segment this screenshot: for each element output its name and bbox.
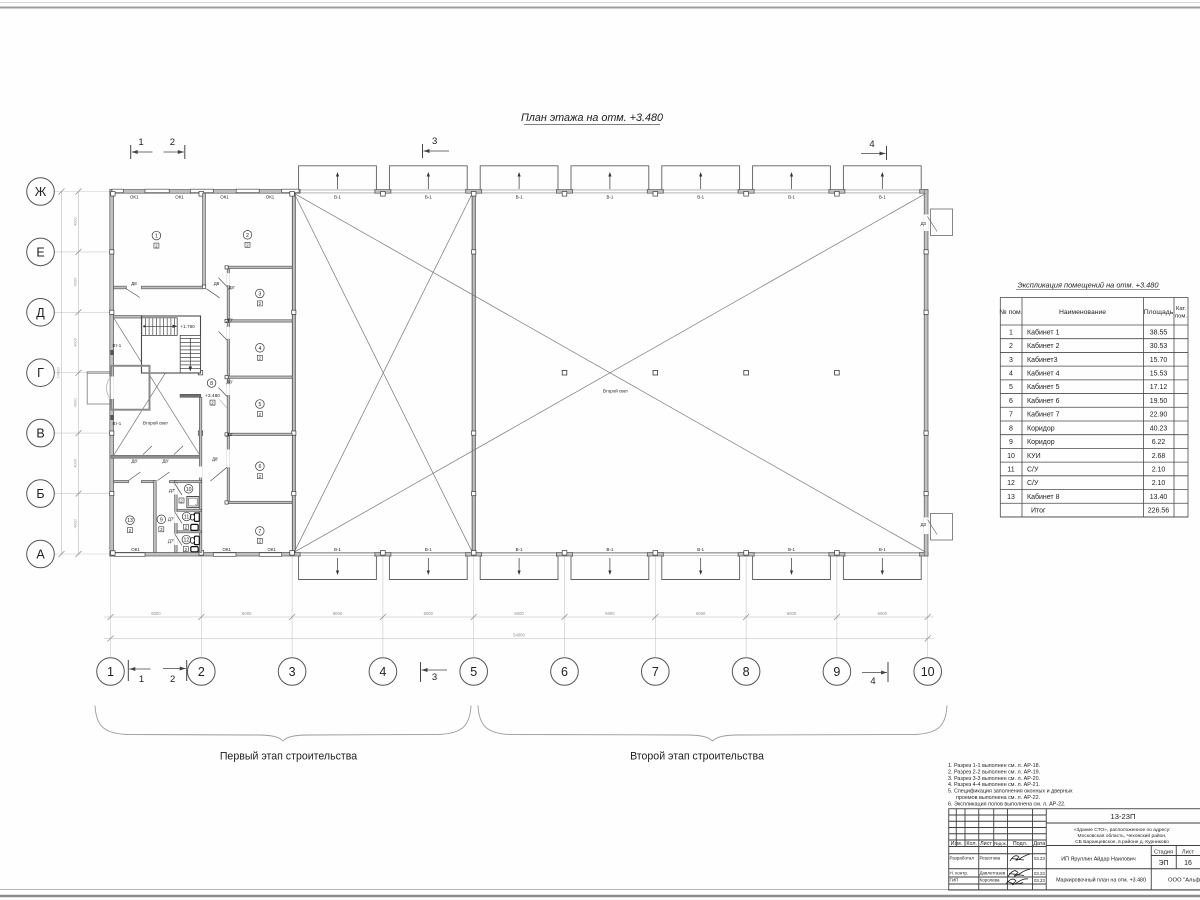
svg-text:6000: 6000 — [333, 611, 343, 616]
svg-text:Экспликация помещений на отм.: Экспликация помещений на отм. +3.480 — [1017, 281, 1159, 290]
svg-text:КУИ: КУИ — [1027, 453, 1041, 460]
svg-text:Д7': Д7' — [168, 539, 174, 544]
svg-text:Д8': Д8' — [162, 459, 168, 464]
svg-text:Ж: Ж — [35, 185, 47, 199]
svg-text:ОК1: ОК1 — [131, 547, 140, 552]
svg-text:5: 5 — [470, 665, 477, 679]
svg-text:1: 1 — [138, 137, 143, 148]
svg-text:2.68: 2.68 — [1152, 453, 1166, 460]
svg-text:4000: 4000 — [73, 216, 78, 226]
svg-text:1: 1 — [1009, 329, 1013, 336]
svg-text:2: 2 — [170, 137, 175, 148]
svg-text:2: 2 — [170, 674, 175, 685]
svg-text:1. Разрез 1-1 выполнен см. л.: 1. Разрез 1-1 выполнен см. л. АР-18. — [948, 763, 1040, 769]
svg-text:1: 1 — [107, 665, 114, 679]
svg-text:№ пом.: № пом. — [999, 309, 1022, 316]
svg-text:Разработал: Разработал — [950, 856, 975, 861]
svg-text:Д8': Д8' — [228, 285, 234, 290]
svg-text:2.10: 2.10 — [1152, 480, 1166, 487]
svg-text:Д8': Д8' — [226, 432, 232, 437]
svg-text:15.70: 15.70 — [1150, 357, 1168, 364]
svg-text:Стадия: Стадия — [1154, 850, 1173, 856]
svg-text:Кабинет 8: Кабинет 8 — [1027, 493, 1060, 501]
svg-text:15.53: 15.53 — [1150, 371, 1168, 378]
svg-text:4000: 4000 — [73, 277, 78, 287]
svg-text:Московская область, Чеховский: Московская область, Чеховский район, — [1078, 832, 1167, 839]
svg-text:Решетова: Решетова — [980, 856, 1001, 861]
svg-text:4000: 4000 — [73, 337, 78, 347]
svg-text:6. Экспликация полов выполнена: 6. Экспликация полов выполнена см. л. АР… — [948, 801, 1066, 807]
svg-text:10: 10 — [1007, 453, 1015, 460]
svg-text:Д3: Д3 — [921, 221, 927, 226]
svg-text:Лист: Лист — [1182, 850, 1195, 856]
svg-text:Подл.: Подл. — [1013, 841, 1028, 847]
svg-text:4: 4 — [379, 665, 386, 679]
svg-text:13.40: 13.40 — [1150, 494, 1168, 501]
svg-text:6000: 6000 — [424, 611, 434, 616]
svg-text:Коридор: Коридор — [1027, 439, 1055, 446]
svg-text:Д8': Д8' — [226, 380, 232, 385]
svg-text:Д: Д — [36, 306, 45, 320]
svg-text:1: 1 — [155, 234, 158, 240]
svg-text:6000: 6000 — [514, 611, 524, 616]
svg-text:6: 6 — [561, 665, 568, 679]
svg-text:Д8: Д8 — [131, 281, 137, 286]
svg-text:11: 11 — [1007, 467, 1014, 474]
svg-text:2.10: 2.10 — [1152, 467, 1166, 474]
svg-text:40.23: 40.23 — [1150, 425, 1168, 432]
svg-text:С/У: С/У — [1027, 480, 1039, 487]
svg-text:Кабинет3: Кабинет3 — [1027, 356, 1058, 364]
svg-text:8: 8 — [1009, 425, 1013, 432]
svg-text:Маркировочный план на отм. +3.: Маркировочный план на отм. +3.480 — [1056, 877, 1146, 884]
svg-text:2: 2 — [246, 233, 249, 239]
svg-text:ИП Яруллин Айдар Наилович: ИП Яруллин Айдар Наилович — [1061, 856, 1136, 863]
svg-text:ОК1: ОК1 — [267, 547, 276, 552]
svg-text:Кабинет 5: Кабинет 5 — [1027, 383, 1060, 391]
svg-text:3: 3 — [258, 291, 261, 297]
svg-text:Лист: Лист — [980, 841, 992, 847]
svg-text:№док.: №док. — [994, 841, 1007, 846]
svg-text:3: 3 — [432, 136, 437, 147]
svg-text:9: 9 — [833, 665, 840, 679]
svg-text:03.23: 03.23 — [1034, 878, 1045, 883]
svg-text:8: 8 — [743, 665, 750, 679]
svg-text:ОК1: ОК1 — [130, 195, 139, 200]
svg-text:ГИП: ГИП — [950, 878, 959, 883]
svg-text:Коридор: Коридор — [1027, 425, 1055, 432]
svg-text:В-1: В-1 — [879, 195, 886, 200]
svg-text:6000: 6000 — [605, 611, 615, 616]
svg-text:2: 2 — [1009, 343, 1013, 350]
svg-text:Д3: Д3 — [921, 522, 927, 527]
svg-text:В-1: В-1 — [516, 547, 523, 552]
svg-text:В-1: В-1 — [516, 195, 523, 200]
svg-text:Первый этап строительства: Первый этап строительства — [220, 751, 357, 763]
svg-text:Вт-1: Вт-1 — [113, 343, 122, 348]
svg-text:С/У: С/У — [1027, 467, 1039, 474]
svg-text:13: 13 — [1007, 494, 1015, 501]
svg-text:Дата: Дата — [1033, 841, 1045, 847]
svg-text:В-1: В-1 — [697, 195, 704, 200]
svg-text:СБ Баранцевское, в районе д. К: СБ Баранцевское, в районе д. Курниково — [1075, 838, 1169, 845]
svg-text:В-1: В-1 — [879, 547, 886, 552]
svg-text:Королева: Королева — [980, 878, 1000, 883]
svg-text:226.56: 226.56 — [1148, 508, 1170, 515]
svg-text:17.12: 17.12 — [1150, 384, 1168, 391]
svg-text:Изм.: Изм. — [951, 841, 963, 847]
svg-text:12: 12 — [1007, 480, 1015, 487]
svg-text:11: 11 — [184, 515, 189, 521]
svg-text:6000: 6000 — [787, 611, 797, 616]
svg-text:16: 16 — [1184, 860, 1192, 867]
svg-text:ОК1: ОК1 — [222, 547, 231, 552]
svg-text:5: 5 — [258, 402, 261, 408]
svg-text:«Здание СТО», расположенное по: «Здание СТО», расположенное по адресу: — [1073, 827, 1170, 833]
svg-text:Д8': Д8' — [131, 459, 137, 464]
svg-text:2: 2 — [198, 665, 205, 679]
svg-text:38.55: 38.55 — [1150, 329, 1168, 336]
svg-text:пом.: пом. — [1175, 314, 1187, 320]
svg-text:3: 3 — [289, 665, 296, 679]
svg-text:Б: Б — [36, 487, 44, 501]
svg-text:4000: 4000 — [73, 519, 78, 529]
svg-text:ООО "Альфа: ООО "Альфа — [1168, 878, 1200, 884]
svg-text:ОК1: ОК1 — [175, 195, 184, 200]
svg-text:+3.480: +3.480 — [205, 393, 220, 399]
svg-text:В-1: В-1 — [697, 547, 704, 552]
svg-text:В-1: В-1 — [606, 195, 613, 200]
svg-text:03.23: 03.23 — [1034, 856, 1045, 861]
svg-text:Итог: Итог — [1031, 508, 1046, 515]
svg-text:3: 3 — [1009, 357, 1013, 364]
svg-text:10: 10 — [921, 665, 935, 679]
svg-text:В-1: В-1 — [334, 547, 341, 552]
svg-text:В-1: В-1 — [425, 195, 432, 200]
svg-text:Е: Е — [36, 245, 44, 259]
svg-text:Площадь: Площадь — [1144, 309, 1174, 316]
svg-text:13: 13 — [127, 518, 133, 524]
svg-text:4. Разрез 4-4 выполнен см. л.: 4. Разрез 4-4 выполнен см. л. АР-21. — [948, 782, 1040, 788]
svg-text:8: 8 — [210, 381, 213, 387]
svg-text:Г: Г — [37, 366, 44, 380]
svg-text:Кабинет 2: Кабинет 2 — [1027, 342, 1060, 350]
svg-text:4: 4 — [258, 346, 261, 352]
svg-text:7: 7 — [1009, 412, 1013, 419]
svg-text:Кабинет 6: Кабинет 6 — [1027, 397, 1060, 405]
svg-text:2. Разрез 2-2 выполнен см. л.: 2. Разрез 2-2 выполнен см. л. АР-19. — [948, 770, 1040, 776]
svg-text:В-1: В-1 — [334, 195, 341, 200]
svg-text:5: 5 — [1009, 384, 1013, 391]
svg-text:Кабинет 7: Кабинет 7 — [1027, 411, 1060, 419]
svg-text:Кабинет 1: Кабинет 1 — [1027, 328, 1060, 336]
svg-text:Второй этап строительства: Второй этап строительства — [630, 751, 764, 763]
svg-text:5. Спецификация заполнения око: 5. Спецификация заполнения оконных и две… — [948, 789, 1073, 795]
svg-text:ОК1: ОК1 — [220, 195, 229, 200]
svg-text:В-1: В-1 — [606, 547, 613, 552]
svg-text:3: 3 — [432, 672, 437, 683]
svg-text:6000: 6000 — [151, 611, 161, 616]
svg-text:План этажа на отм. +3.480: План этажа на отм. +3.480 — [521, 112, 663, 124]
svg-text:12: 12 — [184, 538, 190, 544]
svg-text:4: 4 — [870, 676, 875, 687]
svg-text:ОК1: ОК1 — [266, 195, 275, 200]
svg-text:6: 6 — [1009, 398, 1013, 405]
svg-text:+1.760: +1.760 — [181, 324, 196, 329]
svg-text:54000: 54000 — [513, 633, 525, 638]
svg-text:Кабинет 4: Кабинет 4 — [1027, 370, 1060, 378]
svg-text:Вт-1: Вт-1 — [113, 421, 122, 426]
svg-text:Наименование: Наименование — [1059, 309, 1106, 316]
svg-text:В-1: В-1 — [788, 547, 795, 552]
svg-text:4: 4 — [1009, 371, 1013, 378]
svg-text:Д8': Д8' — [226, 318, 232, 323]
svg-text:7: 7 — [258, 529, 261, 535]
svg-text:Давлетгазев: Давлетгазев — [980, 871, 1006, 876]
svg-text:Д7': Д7' — [169, 488, 175, 493]
svg-text:Второй свет: Второй свет — [143, 420, 168, 426]
svg-text:03.23: 03.23 — [1034, 871, 1045, 876]
svg-text:Д7': Д7' — [168, 517, 174, 522]
svg-text:Второй свет: Второй свет — [603, 388, 628, 394]
svg-text:9: 9 — [1009, 439, 1013, 446]
svg-text:Н. контр.: Н. контр. — [950, 871, 969, 876]
svg-text:4000: 4000 — [73, 458, 78, 468]
svg-text:22.90: 22.90 — [1150, 412, 1168, 419]
svg-text:3. Разрез 3-3 выполнен см. л.: 3. Разрез 3-3 выполнен см. л. АР-20. — [948, 776, 1040, 782]
svg-text:9: 9 — [160, 517, 163, 523]
svg-text:В-1: В-1 — [425, 547, 432, 552]
svg-text:Д8': Д8' — [212, 457, 218, 462]
svg-text:В: В — [36, 427, 44, 441]
svg-text:7: 7 — [652, 665, 659, 679]
svg-text:6: 6 — [258, 464, 261, 470]
svg-text:24000: 24000 — [56, 367, 61, 379]
svg-text:6000: 6000 — [242, 611, 252, 616]
svg-text:4: 4 — [869, 139, 874, 150]
svg-text:Кат.: Кат. — [1176, 306, 1186, 312]
svg-text:4000: 4000 — [73, 398, 78, 408]
svg-text:В-1: В-1 — [788, 195, 795, 200]
svg-text:6000: 6000 — [878, 611, 888, 616]
svg-text:10: 10 — [186, 487, 192, 493]
svg-text:проемов выполнена см. л. АР-22: проемов выполнена см. л. АР-22. — [956, 795, 1040, 801]
svg-text:13-23П: 13-23П — [1111, 812, 1136, 821]
svg-text:6000: 6000 — [696, 611, 706, 616]
svg-text:19.50: 19.50 — [1150, 398, 1168, 405]
svg-text:6.22: 6.22 — [1152, 439, 1166, 446]
svg-text:Д8: Д8 — [214, 281, 220, 286]
svg-text:А: А — [36, 548, 45, 562]
svg-text:ЭП: ЭП — [1158, 860, 1168, 867]
svg-text:Кол.: Кол. — [966, 841, 977, 847]
svg-text:30.53: 30.53 — [1150, 343, 1168, 350]
svg-text:1: 1 — [139, 674, 144, 685]
